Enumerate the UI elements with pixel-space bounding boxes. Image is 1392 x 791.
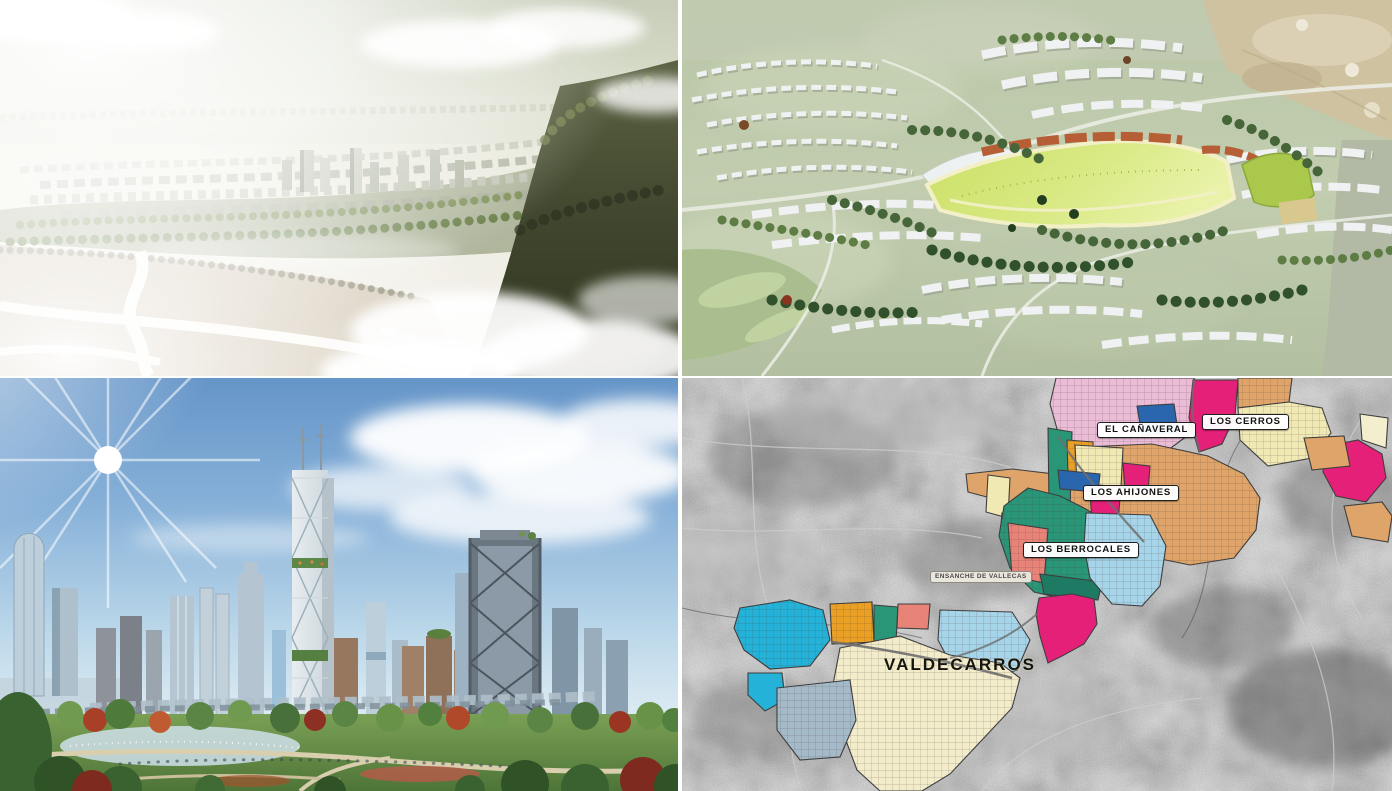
urban-development-collage: EL CAÑAVERAL LOS CERROS LOS AHIJONES LOS… [0, 0, 1392, 791]
glass-slab-tower [170, 596, 194, 716]
horizontal-divider [0, 376, 1392, 378]
label-valdecarros: VALDECARROS [884, 655, 1036, 675]
panel-aerial-riverside-render [0, 0, 678, 376]
label-los-berrocales: LOS BERROCALES [1023, 542, 1139, 558]
masterplan-illustration [682, 0, 1392, 376]
panel-development-zones-map: EL CAÑAVERAL LOS CERROS LOS AHIJONES LOS… [682, 378, 1392, 791]
vertical-divider [678, 0, 682, 791]
zones-map-illustration [682, 378, 1392, 791]
tower [606, 640, 628, 716]
skyline-illustration [0, 378, 678, 791]
twin-tower [216, 594, 229, 716]
stepped-tower [238, 574, 264, 716]
sky-garden-band [292, 650, 328, 661]
label-el-canaveral: EL CAÑAVERAL [1097, 422, 1196, 438]
aerial-riverside-illustration [0, 0, 678, 376]
label-ensanche-de-vallecas: ENSANCHE DE VALLECAS [930, 571, 1032, 583]
panel-aerial-masterplan-render [682, 0, 1392, 376]
label-los-cerros: LOS CERROS [1202, 414, 1289, 430]
label-los-ahijones: LOS AHIJONES [1083, 485, 1179, 501]
twin-tower [200, 588, 213, 716]
rounded-glass-tower [14, 534, 44, 697]
panel-skyline-render [0, 378, 678, 791]
